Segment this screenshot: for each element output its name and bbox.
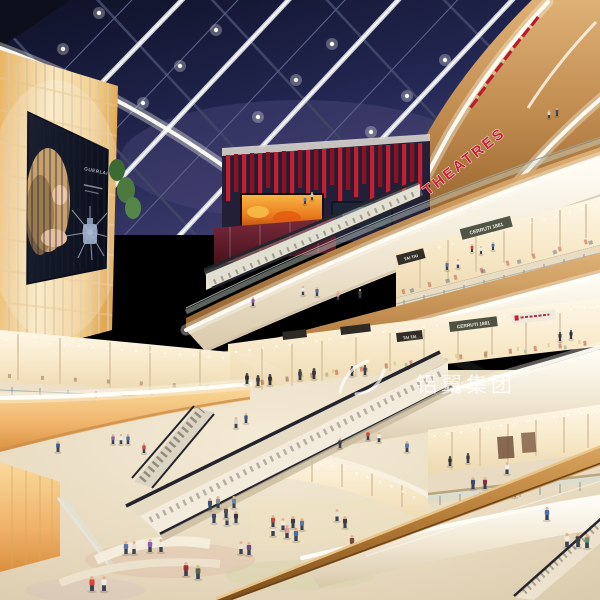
wall-poster (497, 436, 514, 459)
wall-poster (521, 432, 536, 453)
scene-canvas: GUERLAIN (0, 0, 600, 600)
mall-atrium-rendering: GUERLAIN (0, 0, 600, 600)
watermark-text: 铝翼集团 (416, 374, 516, 397)
person (357, 289, 363, 300)
model-face (53, 185, 68, 205)
